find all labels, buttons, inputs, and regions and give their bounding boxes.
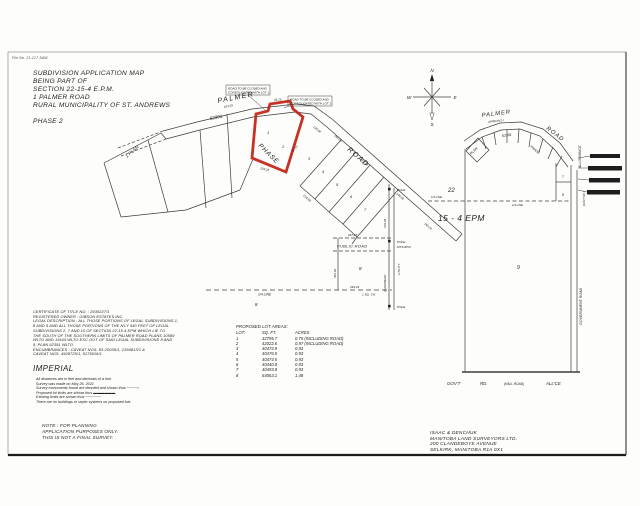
certificate-line: CAVEAT NOS. 4928725/1, 5175616/1: [33, 352, 178, 357]
svg-text:293.23: 293.23: [349, 285, 360, 289]
govt-rd-vertical-label: (GOV'T RD.): [582, 191, 586, 206]
left-map-labels: PALMER ROAD 62391 1 PLAN PHASE ROAD TO B…: [124, 87, 433, 310]
plan-1-label: 1 PLAN: [124, 144, 140, 159]
right-map: [413, 74, 622, 372]
lot-number: 8: [562, 193, 564, 197]
lot-number: 6: [350, 194, 353, 199]
compass-n: N: [430, 68, 434, 73]
label-bar: [588, 166, 622, 171]
title-line: SECTION 22-15-4 E.P.M.: [33, 86, 170, 94]
svg-text:103.29: 103.29: [223, 103, 233, 109]
svg-text:150.25: 150.25: [333, 134, 343, 143]
lot-number: 4: [322, 169, 325, 174]
road-label-road: ROAD: [545, 126, 565, 143]
callout2-line2: CONSOLIDATED WITH LOT 2: [290, 102, 331, 106]
parcel-9-label: 9: [517, 265, 520, 271]
svg-text:214.95: 214.95: [302, 193, 313, 203]
road-label-palmer: PALMER: [482, 109, 512, 119]
legal-subdivision-8: 8: [255, 302, 258, 307]
mts-box-label: MTS BOX: [397, 245, 412, 249]
imperial-heading: IMPERIAL: [33, 364, 74, 373]
survey-sheet: PALMER ROAD 62391 1 PLAN PHASE ROAD TO B…: [0, 0, 640, 506]
file-number: File No. 21-217 SAW: [12, 56, 48, 60]
lot-number: 2: [281, 144, 285, 149]
east-callout-bars: [578, 154, 622, 195]
svg-text:267.27: 267.27: [347, 233, 358, 237]
phase-label: PHASE 2: [33, 118, 63, 125]
quarter-line-label: 1/4 LINE: [512, 203, 523, 207]
utility-corridor: [388, 184, 394, 310]
pole-marker: [388, 240, 391, 243]
note-block: NOTE : FOR PLANNING APPLICATION PURPOSES…: [42, 423, 118, 441]
lot-number: 7: [364, 207, 367, 212]
svg-text:125.98: 125.98: [312, 125, 322, 134]
proposed-lot-areas-table: PROPOSED LOT AREAS: LOT:SQ. FT.ACRES 132…: [236, 324, 383, 378]
left-map: [104, 85, 462, 310]
label-bar: [589, 178, 620, 183]
west-lot-cluster: [104, 114, 253, 217]
bottom-label-rd: RD.: [480, 381, 488, 386]
certificate-block: CERTIFICATE OF TITLE NO. : 2939227/1 REG…: [33, 310, 178, 357]
bottom-label-allce: ALL'CE: [545, 381, 561, 386]
imperial-note: There are no buildings or septic systems…: [36, 400, 139, 405]
utility-label: UTILITY: [397, 263, 401, 275]
title-line: RURAL MUNICIPALITY OF ST. ANDREWS: [33, 102, 170, 110]
surveyor-block: ISAAC & DENCHUK MANITOBA LAND SURVEYORS …: [430, 431, 517, 453]
compass-s: S: [430, 122, 434, 127]
svg-text:57.13: 57.13: [291, 144, 299, 153]
compass-w: W: [407, 95, 412, 100]
lot-number: 8: [359, 266, 362, 271]
lot-number: 1: [267, 130, 269, 135]
government-road-label: GOVERNMENT ROAD: [579, 287, 583, 325]
section-parcel-lines: [428, 149, 580, 372]
svg-text:144.99: 144.99: [395, 192, 405, 201]
lot-number: 5: [336, 182, 339, 187]
overhead-label: OVERHEAD: [383, 274, 387, 292]
lot-number: 7: [562, 175, 564, 179]
compass-rose: [413, 74, 451, 120]
quarter-line-label: 1/4 LINE: [258, 293, 272, 297]
svg-text:104.94: 104.94: [383, 218, 387, 228]
pole-label: POLE: [397, 240, 406, 244]
callout1-line2: CONSOLIDATED WITH LOT 1: [228, 91, 269, 95]
pole-marker: [388, 188, 391, 191]
palmer-approach-arc: [464, 122, 573, 167]
plan-number: 62391: [209, 114, 223, 121]
section-number: 22: [447, 188, 455, 194]
right-map-labels: N E S W PALMER APPROACH ROAD 62391 PLAN …: [407, 68, 586, 386]
title-line: BEING PART OF: [33, 78, 170, 86]
compass-e: E: [453, 95, 457, 100]
label-bar: [590, 154, 620, 158]
title-line: SUBDIVISION APPLICATION MAP: [33, 70, 170, 78]
sq-ch-label: 1 SQ. CH.: [362, 293, 376, 297]
surveyor-line: SELKIRK, MANITOBA R1A 0X1: [430, 448, 517, 454]
bottom-label-govt: GOV'T: [447, 381, 461, 386]
imperial-notes: All distances are in feet and decimals o…: [36, 377, 139, 405]
plan-number: 62391: [502, 133, 512, 138]
table-row: 864063.11.48: [236, 373, 383, 378]
township-label: 15 - 4 EPM: [438, 213, 485, 223]
lot-number: 3: [308, 156, 311, 161]
title-block: SUBDIVISION APPLICATION MAP BEING PART O…: [33, 70, 170, 110]
pole-label: POLE: [397, 305, 406, 309]
pole-marker: [388, 305, 391, 308]
svg-text:150.03: 150.03: [423, 222, 433, 231]
public-road-label: PUBLIC ROAD: [337, 244, 367, 249]
quarter-line-label: 1/4 LINE: [431, 195, 442, 199]
note-line: THIS IS NOT A FINAL SURVEY.: [42, 435, 118, 441]
bottom-label-hall-road: (HALL ROAD): [504, 382, 524, 386]
allowance-label: ALLOWANCE: [578, 145, 582, 169]
svg-text:345.62: 345.62: [333, 268, 337, 278]
svg-text:45.26: 45.26: [274, 97, 282, 102]
phase-label: PHASE: [529, 145, 541, 156]
table-title: PROPOSED LOT AREAS:: [236, 324, 383, 329]
label-bar: [587, 190, 620, 195]
title-line: 1 PALMER ROAD: [33, 94, 170, 102]
palmer-road-lines: [118, 104, 462, 241]
plan-label: PLAN: [469, 146, 479, 156]
svg-text:129.35: 129.35: [260, 166, 270, 172]
